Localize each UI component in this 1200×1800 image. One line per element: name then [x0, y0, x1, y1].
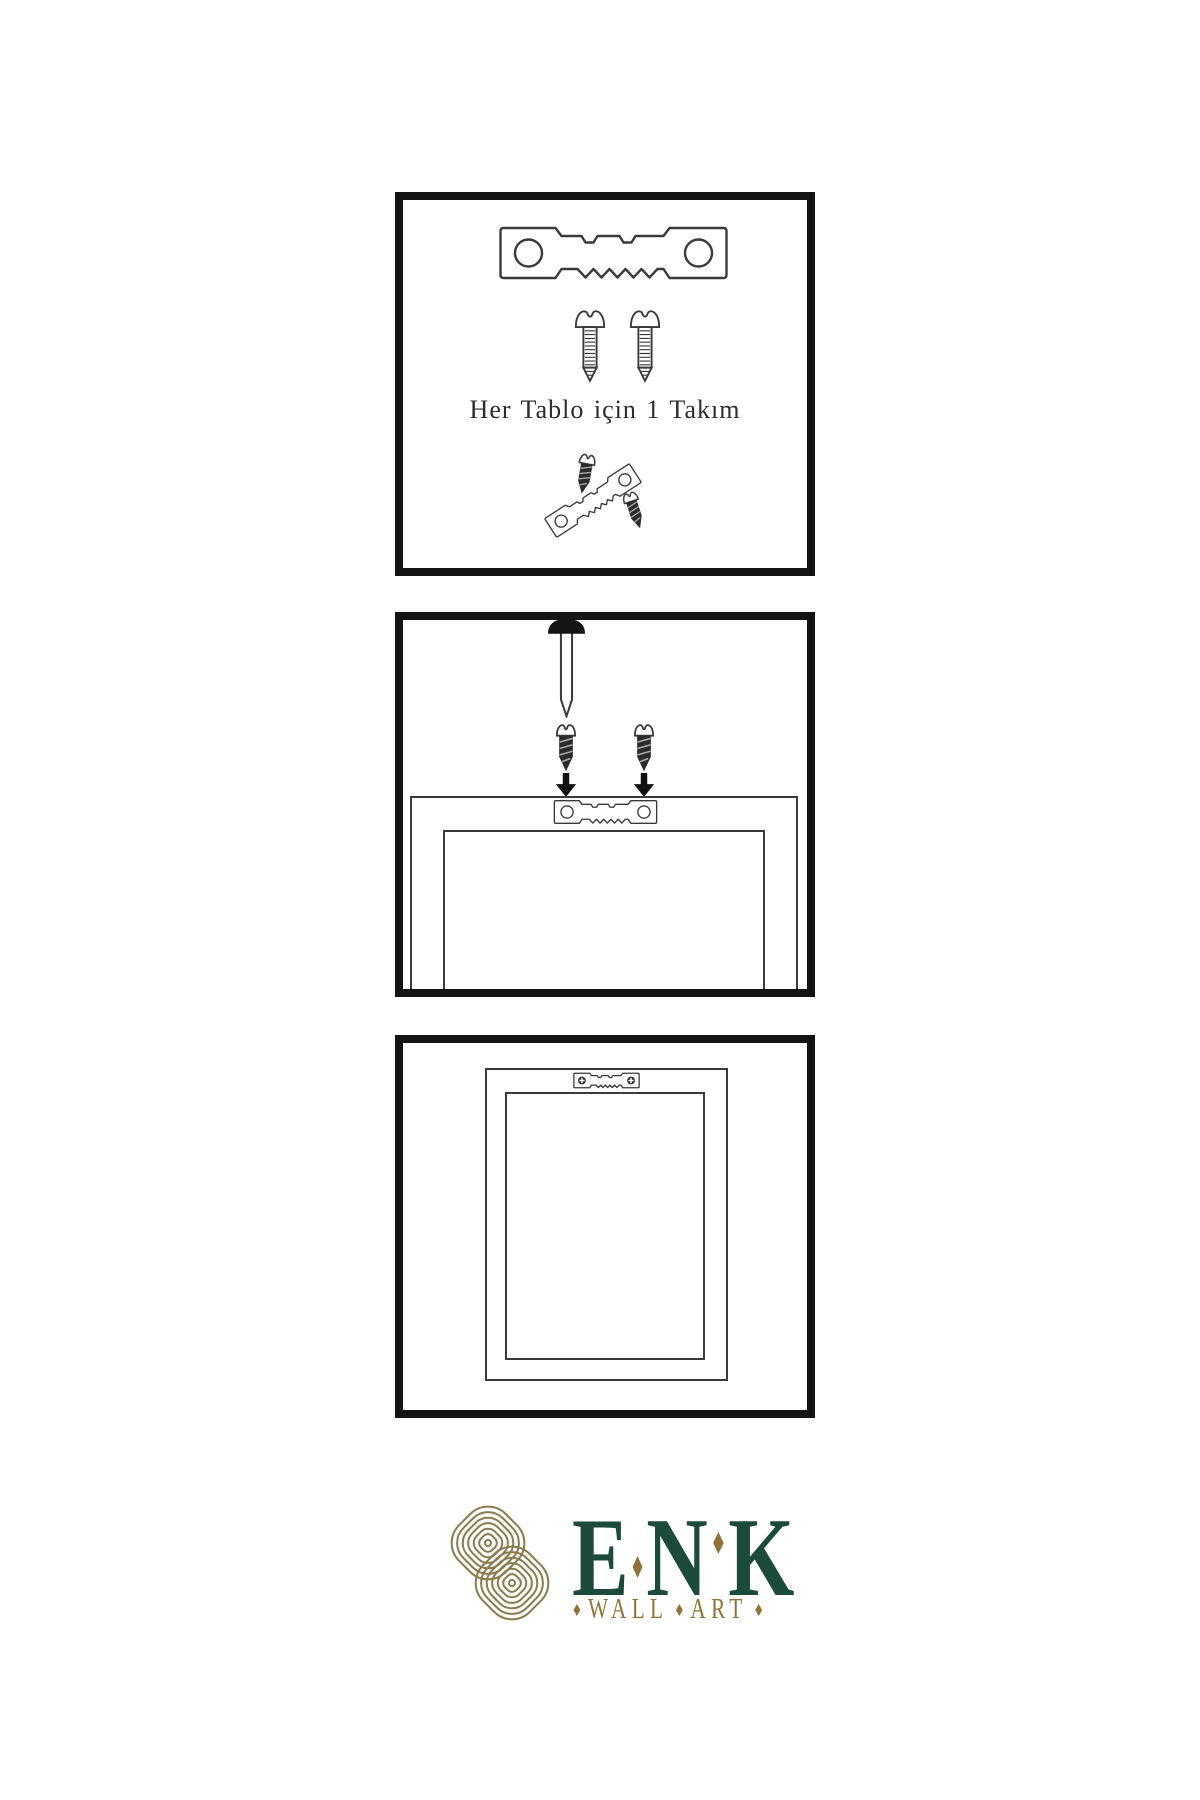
brand-letter: N	[646, 1512, 707, 1604]
parts-caption: Her Tablo için 1 Takım	[403, 396, 807, 425]
screw-icon	[573, 307, 607, 383]
diamond-icon	[676, 1604, 683, 1616]
dark-screw-icon	[554, 722, 578, 775]
picture-frame-back-inner	[505, 1092, 705, 1360]
brand-tagline: WALL ART	[574, 1596, 763, 1624]
panel-hardware-parts: Her Tablo için 1 Takım	[395, 192, 815, 576]
diamond-icon	[574, 1604, 581, 1616]
brand-name: E N K	[572, 1512, 800, 1604]
instruction-sheet: Her Tablo için 1 Takım	[0, 0, 1200, 1800]
dark-screw-icon	[632, 722, 656, 775]
sawtooth-hanger-icon	[497, 225, 730, 281]
panel-mounted-frame	[395, 1035, 815, 1418]
brand-letter: E	[572, 1512, 629, 1604]
diamond-icon	[755, 1604, 762, 1616]
brand-wordmark: E N K WALL ART	[572, 1512, 800, 1642]
panel-hanging-step	[395, 612, 815, 997]
brand-letter: K	[728, 1512, 794, 1604]
dark-screw-icon	[619, 488, 650, 534]
diamond-icon	[633, 1556, 643, 1578]
picture-frame-back-inner	[443, 830, 765, 997]
arrow-down-icon	[633, 773, 655, 797]
screw-icon	[628, 307, 662, 383]
nail-icon	[546, 618, 587, 718]
arrow-down-icon	[555, 773, 577, 797]
sawtooth-hanger-mounted-icon	[573, 1072, 640, 1089]
sawtooth-hanger-icon	[553, 799, 658, 825]
tagline-word: WALL	[588, 1596, 668, 1624]
diamond-icon	[713, 1532, 724, 1554]
brand-knot-icon	[438, 1493, 562, 1633]
tagline-word: ART	[690, 1596, 747, 1624]
